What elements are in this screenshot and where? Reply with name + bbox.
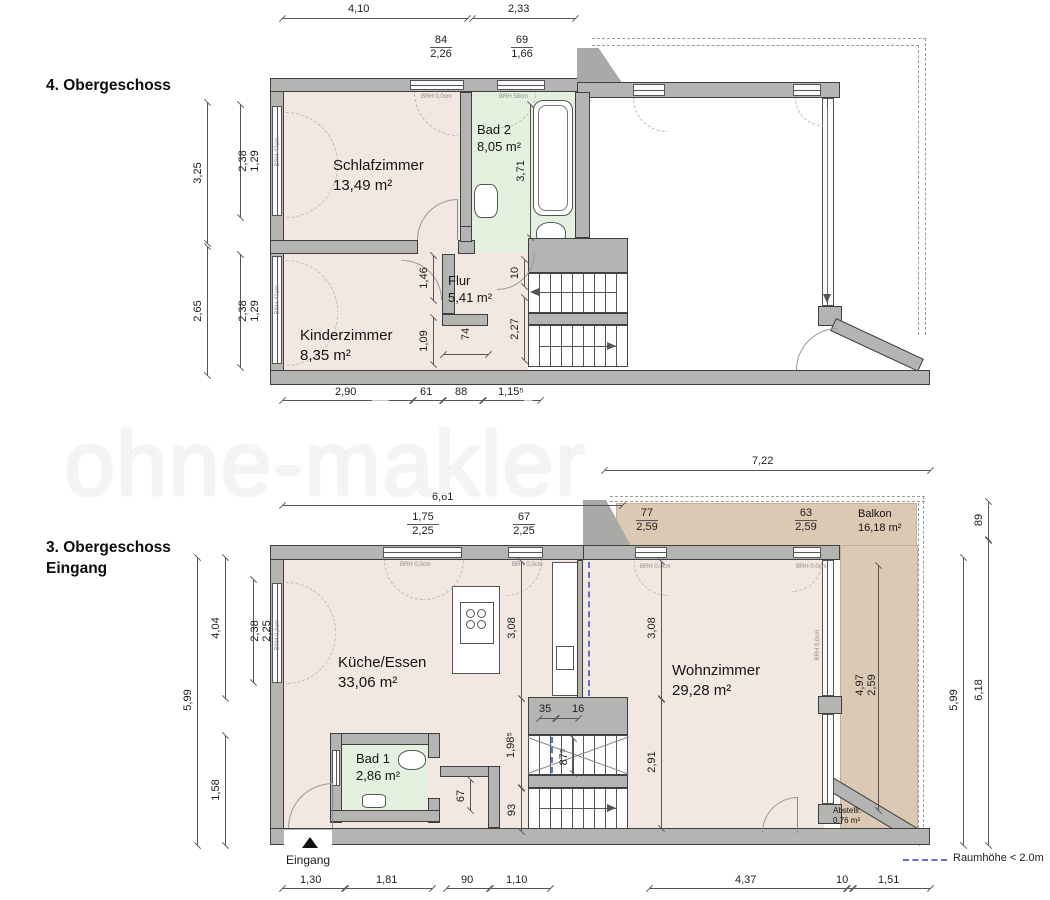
dim-label: 1,09 <box>418 330 430 351</box>
dim-label: 2,27 <box>509 318 521 339</box>
room-area: 5,41 m² <box>448 290 492 307</box>
dim-line <box>283 400 413 401</box>
dim-label: 2,25 <box>412 525 433 538</box>
dim-line <box>207 103 208 243</box>
dim-pair: 63 2,59 <box>782 507 830 533</box>
dim-label: 1,81 <box>376 874 397 886</box>
dim-label: 2,25 <box>261 620 273 641</box>
brh-label: BRH 0,0cm <box>421 94 452 100</box>
dim-line <box>345 888 432 889</box>
door-leaf <box>332 783 333 828</box>
dim-label: 2,26 <box>430 48 451 61</box>
dim-label: 89 <box>973 514 985 526</box>
dim-line <box>963 558 964 845</box>
dim-label: 63 <box>795 507 817 521</box>
room-label-schlafzimmer: Schlafzimmer 13,49 m² <box>333 156 424 195</box>
wall <box>270 370 930 385</box>
door-leaf <box>457 200 458 240</box>
dim-label: 6,18 <box>973 679 985 700</box>
watermark-logo-icon <box>330 384 610 464</box>
room-name: Abstellr. <box>833 806 861 816</box>
dim-line <box>524 298 525 360</box>
room-area: 0,76 m² <box>833 816 861 826</box>
room-name: Wohnzimmer <box>672 661 760 681</box>
wall <box>330 810 440 822</box>
dim-pair: 2,38 1,29 <box>237 150 261 171</box>
dim-label: 84 <box>430 34 452 48</box>
room-label-abstellraum: Abstellr. 0,76 m² <box>833 806 861 825</box>
dim-line <box>283 18 467 19</box>
dim-label: 1,75 <box>407 511 438 525</box>
stair-landing-wall <box>528 775 628 788</box>
dim-label: 3,25 <box>192 162 204 183</box>
room-label-bad1: Bad 1 2,86 m² <box>356 751 400 785</box>
room-area: 8,05 m² <box>477 139 521 156</box>
dim-label: 2,91 <box>646 751 658 772</box>
room-name: Bad 1 <box>356 751 400 768</box>
kitchen-sink <box>556 646 574 670</box>
dim-label: 87⁵ <box>558 749 570 766</box>
room-label-kueche: Küche/Essen 33,06 m² <box>338 653 426 692</box>
dim-label: 1,29 <box>249 300 261 321</box>
wall <box>460 92 472 228</box>
dim-pair: 2,38 1,29 <box>237 300 261 321</box>
brh-label: BRH 58cm <box>499 94 528 100</box>
dim-label: 77 <box>636 507 658 521</box>
window <box>633 84 665 96</box>
dim-pair: 77 2,59 <box>623 507 671 533</box>
dim-line <box>470 780 471 810</box>
room-area: 8,35 m² <box>300 346 393 366</box>
window <box>793 84 821 96</box>
dim-line <box>443 400 483 401</box>
dim-label: 67 <box>455 790 467 802</box>
room-name: Balkon <box>858 507 901 521</box>
dim-line <box>650 888 847 889</box>
dim-line <box>878 566 879 810</box>
room-label-wohnzimmer: Wohnzimmer 29,28 m² <box>672 661 760 700</box>
wall <box>458 240 475 254</box>
dim-line <box>605 470 930 471</box>
wall <box>575 92 590 238</box>
dim-pair: 84 2,26 <box>415 34 467 60</box>
balkon-dash-line <box>923 496 924 842</box>
brh-label: BRH 0,0cm <box>275 620 281 651</box>
dim-pair: 67 2,25 <box>500 511 548 537</box>
low-ceiling-line <box>551 737 553 773</box>
floor3-title-line1: 3. Obergeschoss <box>46 538 171 559</box>
floor-plan-canvas: 4. Obergeschoss 3. Obergeschoss Eingang <box>0 0 1050 900</box>
dim-line <box>283 505 622 506</box>
wall <box>428 733 440 758</box>
dim-label: 2,33 <box>508 3 529 15</box>
dim-pair: 4,97 2,59 <box>854 674 878 695</box>
dim-label: 5,99 <box>948 689 960 710</box>
dim-label: 90 <box>461 874 473 886</box>
room-label-kinderzimmer: Kinderzimmer 8,35 m² <box>300 326 393 365</box>
stair-flight <box>528 273 628 313</box>
window <box>793 547 821 558</box>
dim-label: 1,29 <box>249 150 261 171</box>
window <box>410 80 464 90</box>
dim-label: 5,99 <box>182 689 194 710</box>
dim-label: 3,08 <box>506 617 518 638</box>
dim-pair: 69 1,66 <box>497 34 547 60</box>
wall <box>577 560 583 698</box>
window-glass-front <box>822 98 834 306</box>
dim-label: 10 <box>509 267 521 279</box>
brh-label: BRH 0,0cm <box>815 630 821 661</box>
brh-label: BRH 47cm <box>275 137 281 166</box>
dim-label: 2,59 <box>866 674 878 695</box>
dim-line <box>473 18 575 19</box>
dim-label: 69 <box>511 34 533 48</box>
dim-line <box>444 354 488 355</box>
room-area: 2,86 m² <box>356 768 400 785</box>
entrance-marker-icon <box>302 837 318 848</box>
balkon-dash-line <box>610 496 925 497</box>
stair-head-wall <box>528 238 628 273</box>
room-name: Schlafzimmer <box>333 156 424 176</box>
balkon-dash-line <box>610 501 925 502</box>
legend-dash-line <box>903 859 947 861</box>
dim-label: 16 <box>572 703 584 715</box>
floor3-title-line2: Eingang <box>46 559 171 580</box>
wall <box>460 226 472 242</box>
dim-label: 35 <box>539 703 551 715</box>
dim-label: 61 <box>420 386 432 398</box>
dim-label: 67 <box>513 511 535 525</box>
dim-label: 2,38 <box>237 300 249 321</box>
wall <box>442 314 488 326</box>
arrow-right-icon <box>607 804 616 812</box>
dim-line <box>490 888 550 889</box>
toilet <box>398 750 426 770</box>
dim-line <box>283 888 345 889</box>
kitchen-counter <box>552 562 578 696</box>
brh-label: BRH 0,0cm <box>400 562 431 568</box>
stair-walkline <box>540 292 616 293</box>
dim-label: 3,71 <box>515 160 527 181</box>
dim-label: 2,59 <box>795 521 816 534</box>
dim-line <box>521 699 522 787</box>
dim-label: 7,22 <box>752 455 773 467</box>
dim-label: 3,08 <box>646 617 658 638</box>
dim-line <box>483 400 540 401</box>
wall <box>270 240 418 254</box>
sink <box>474 184 498 218</box>
dim-label: 1,10 <box>506 874 527 886</box>
dim-line <box>573 739 574 773</box>
room-label-bad2: Bad 2 8,05 m² <box>477 122 521 156</box>
dim-label: 1,98⁵ <box>505 732 517 758</box>
dim-label: 4,10 <box>348 3 369 15</box>
window <box>508 547 543 558</box>
dim-label: 88 <box>455 386 467 398</box>
dim-line <box>413 400 443 401</box>
room-name: Küche/Essen <box>338 653 426 673</box>
room-label-flur: Flur 5,41 m² <box>448 273 492 307</box>
dim-line <box>225 736 226 845</box>
wall <box>488 766 500 828</box>
dim-line <box>447 888 490 889</box>
dim-line <box>207 247 208 375</box>
dim-pair: 2,38 2,25 <box>249 620 273 641</box>
arrow-left-icon <box>530 288 539 296</box>
room-name: Kinderzimmer <box>300 326 393 346</box>
stair-walkline <box>540 346 616 347</box>
floor4-title: 4. Obergeschoss <box>46 76 171 97</box>
dim-line <box>661 700 662 828</box>
window-sill-wall <box>818 696 842 714</box>
arrow-right-icon <box>607 342 616 350</box>
room-label-balkon: Balkon 16,18 m² <box>858 507 901 536</box>
stair-walkline <box>540 808 616 809</box>
window <box>822 714 834 804</box>
dim-label: 2,90 <box>335 386 356 398</box>
watermark-text: ohne-makler <box>64 418 586 510</box>
brh-label: BRH 0,0cm <box>512 562 543 568</box>
floor3-title: 3. Obergeschoss Eingang <box>46 538 171 580</box>
eingang-label: Eingang <box>286 853 330 867</box>
wall <box>270 828 930 845</box>
dim-line <box>556 718 578 719</box>
dim-label: 1,66 <box>511 48 532 61</box>
room-area: 29,28 m² <box>672 681 760 701</box>
dim-pair: 1,75 2,25 <box>397 511 449 537</box>
dim-label: 2,59 <box>636 521 657 534</box>
low-ceiling-line <box>588 562 590 696</box>
dim-line <box>853 888 930 889</box>
room-area: 13,49 m² <box>333 176 424 196</box>
brh-label: BRH 47cm <box>275 285 281 314</box>
dim-label: 4,37 <box>735 874 756 886</box>
dim-line <box>433 318 434 364</box>
dim-label: 1,46 <box>418 267 430 288</box>
dim-label: 2,38 <box>249 620 261 641</box>
dim-label: 2,38 <box>237 150 249 171</box>
dim-line <box>433 256 434 300</box>
dim-line <box>521 562 522 698</box>
dim-line <box>661 562 662 698</box>
dim-label: 4,97 <box>854 674 866 695</box>
stair-landing-wall <box>528 313 628 325</box>
window-direction-line <box>827 108 828 296</box>
window <box>383 547 462 558</box>
dim-label: 1,30 <box>300 874 321 886</box>
dim-label: 1,15⁵ <box>498 386 524 398</box>
window <box>332 750 340 786</box>
dim-label: 6,61 <box>432 491 453 503</box>
room-name: Flur <box>448 273 492 290</box>
dim-line <box>524 260 525 286</box>
room-flur-patch <box>418 240 458 254</box>
window <box>822 560 834 696</box>
brh-label: BRH 0,0cm <box>796 564 827 570</box>
dim-line <box>530 105 531 237</box>
window <box>635 547 667 558</box>
dim-label: 1,58 <box>210 779 222 800</box>
dim-label: 93 <box>506 804 518 816</box>
dim-line <box>988 540 989 845</box>
window <box>497 80 545 90</box>
dim-line <box>225 558 226 698</box>
brh-label: BRH 0,0cm <box>640 564 671 570</box>
room-area: 16,18 m² <box>858 521 901 535</box>
dim-label: 74 <box>460 328 472 340</box>
bathtub-inner <box>538 105 568 211</box>
wall <box>330 733 440 745</box>
dim-line <box>988 502 989 540</box>
stove-burners-icon <box>462 606 495 630</box>
dim-label: 1,51 <box>878 874 899 886</box>
dim-line <box>197 558 198 845</box>
arrow-down-icon <box>823 294 831 303</box>
dim-label: 10 <box>836 874 848 886</box>
room-name: Bad 2 <box>477 122 521 139</box>
dim-label: 2,65 <box>192 300 204 321</box>
legend-label: Raumhöhe < 2.0m <box>953 852 1044 864</box>
dim-label: 2,25 <box>513 525 534 538</box>
sink <box>362 794 386 808</box>
room-area: 33,06 m² <box>338 673 426 693</box>
dim-line <box>521 789 522 831</box>
dim-label: 4,04 <box>210 617 222 638</box>
door-leaf <box>797 797 798 833</box>
balkon-dash-line <box>918 503 919 838</box>
